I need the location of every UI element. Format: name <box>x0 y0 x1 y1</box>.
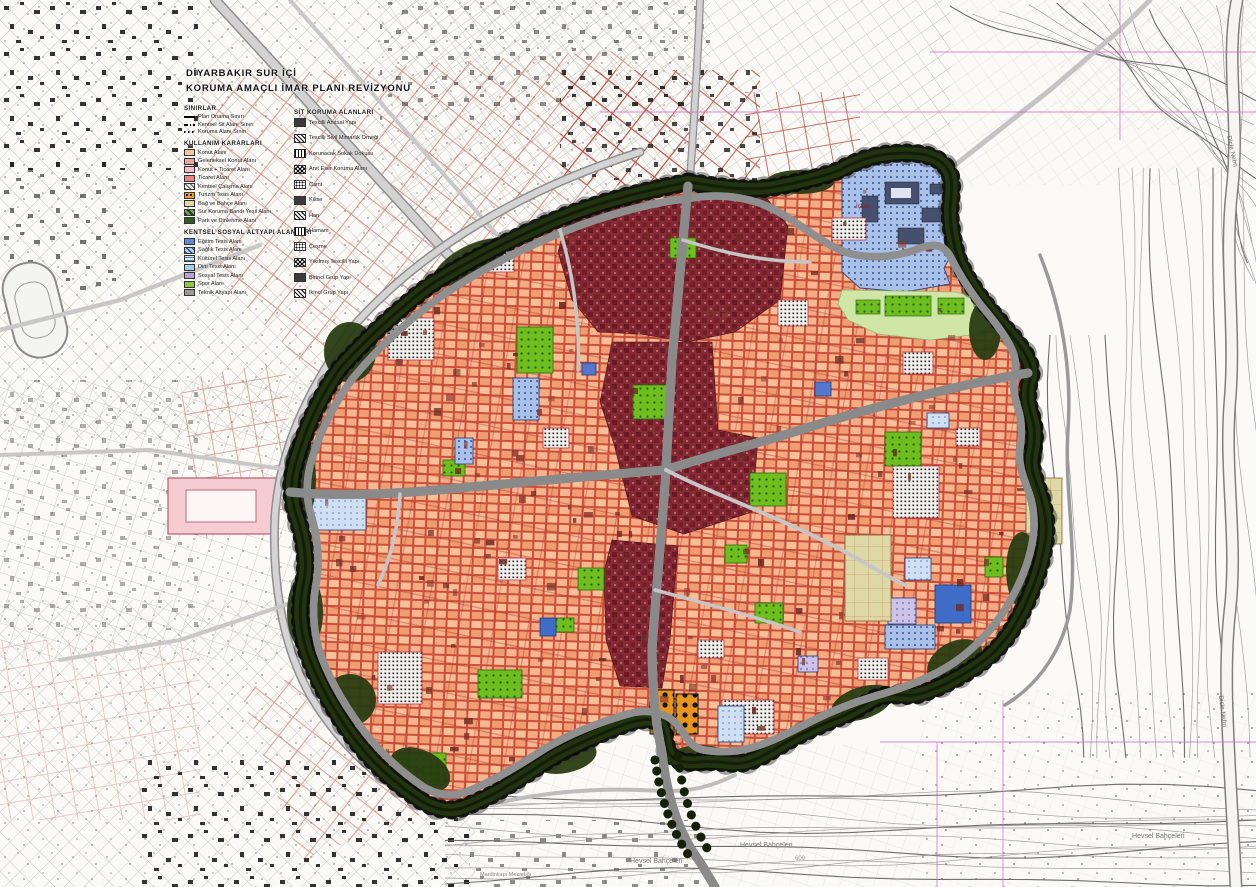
legend-label: Koruma Alanı Sınırı <box>198 129 247 135</box>
legend-swatch <box>184 264 195 271</box>
legend-row: Turizm Tesis Alanı <box>184 192 292 199</box>
legend-swatch <box>184 289 195 296</box>
legend-swatch <box>184 183 195 190</box>
legend-row: Birinci Grup Yapı <box>294 273 414 282</box>
legend-row: Ticaret Alanı <box>184 175 292 182</box>
legend-label: Konut Alanı <box>198 150 227 156</box>
plan-title: DİYARBAKIR SUR İÇİ KORUMA AMAÇLI İMAR PL… <box>186 66 411 96</box>
legend-row: Sur Koruma Bandı Yeşil Alanı <box>184 209 292 216</box>
legend-swatch <box>184 175 195 182</box>
legend-row: Yıkılmış Tescilli Yapı <box>294 258 414 267</box>
legend-row: Plan Onama Sınırı <box>184 114 292 120</box>
legend-row: Han <box>294 211 414 220</box>
legend-row: Spor Alanı <box>184 281 292 288</box>
legend-label: İkinci Grup Yapı <box>309 290 348 296</box>
map-label: 600 <box>795 856 805 862</box>
legend-label: Plan Onama Sınırı <box>198 114 244 120</box>
legend-label: Anıt Eser Koruma Alanı <box>309 166 367 172</box>
legend-label: Kültürel Tesis Alanı <box>198 256 245 262</box>
legend-label: Sağlık Tesis Alanı <box>198 247 242 253</box>
legend-swatch <box>184 217 195 224</box>
legend-label: Cami <box>309 182 322 188</box>
legend-row: Cami <box>294 180 414 189</box>
legend-row: Bağ ve Bahçe Alanı <box>184 200 292 207</box>
legend-swatch <box>184 281 195 288</box>
legend-label: Tescilli Anıtsal Yapı <box>309 120 356 126</box>
plan-sheet: DİYARBAKIR SUR İÇİ KORUMA AMAÇLI İMAR PL… <box>0 0 1256 887</box>
legend-label: Park ve Dinlenme Alanı <box>198 218 256 224</box>
legend-label: Han <box>309 213 319 219</box>
map-label: Mardinkapı Mezarlığı <box>480 872 531 878</box>
legend-section-header: SİT KORUMA ALANLARI <box>294 109 414 116</box>
legend-row: Konut Alanı <box>184 149 292 156</box>
legend-swatch <box>184 238 195 245</box>
legend-swatch <box>294 180 306 189</box>
legend-label: Birinci Grup Yapı <box>309 275 351 281</box>
legend-label: Bağ ve Bahçe Alanı <box>198 201 247 207</box>
legend-swatch <box>294 118 306 127</box>
legend-swatch <box>294 211 306 220</box>
legend-label: Spor Alanı <box>198 281 224 287</box>
legend-section-header: SINIRLAR <box>184 105 292 112</box>
legend-row: Tescilli Sivil Mimarlık Örneği <box>294 134 414 143</box>
legend-swatch <box>294 258 306 267</box>
legend-label: Tescilli Sivil Mimarlık Örneği <box>309 135 378 141</box>
legend-label: Kentsel Sit Alanı Sınırı <box>198 122 254 128</box>
legend-label: Çeşme <box>309 244 327 250</box>
legend-row: Eğitim Tesis Alanı <box>184 238 292 245</box>
legend-label: Sur Koruma Bandı Yeşil Alanı <box>198 209 271 215</box>
legend-row: Park ve Dinlenme Alanı <box>184 217 292 224</box>
legend-swatch <box>184 131 195 133</box>
legend-row: Anıt Eser Koruma Alanı <box>294 165 414 174</box>
legend-label: Konut + Ticaret Alanı <box>198 167 250 173</box>
legend-swatch <box>294 165 306 174</box>
legend-label: Geleneksel Konut Alanı <box>198 158 256 164</box>
legend-row: Tescilli Anıtsal Yapı <box>294 118 414 127</box>
pink-compound <box>168 478 276 534</box>
legend-label: Hamam <box>309 228 329 234</box>
legend-swatch <box>294 273 306 282</box>
legend-column-2: SİT KORUMA ALANLARITescilli Anıtsal Yapı… <box>294 104 414 304</box>
legend-label: Yıkılmış Tescilli Yapı <box>309 259 359 265</box>
legend-row: Geleneksel Konut Alanı <box>184 158 292 165</box>
legend-section-header: KENTSEL SOSYAL ALTYAPI ALANLARI <box>184 229 292 236</box>
legend-row: Korunacak Sokak Dokusu <box>294 149 414 158</box>
legend-row: Sağlık Tesis Alanı <box>184 247 292 254</box>
plan-title-line1: DİYARBAKIR SUR İÇİ <box>186 66 411 81</box>
legend-label: Teknik Altyapı Alanı <box>198 290 246 296</box>
legend-swatch <box>184 247 195 254</box>
legend-swatch <box>294 149 306 158</box>
legend-row: Hamam <box>294 227 414 236</box>
legend-label: Korunacak Sokak Dokusu <box>309 151 373 157</box>
legend-label: Dini Tesis Alanı <box>198 264 236 270</box>
legend-label: Kentsel Çalışma Alanı <box>198 184 253 190</box>
legend-swatch <box>294 134 306 143</box>
legend-swatch <box>294 289 306 298</box>
legend-row: Kültürel Tesis Alanı <box>184 255 292 262</box>
legend-label: Sosyal Tesis Alanı <box>198 273 243 279</box>
legend-row: İkinci Grup Yapı <box>294 289 414 298</box>
legend-swatch <box>184 192 195 199</box>
legend-swatch <box>184 209 195 216</box>
legend-column-1: SINIRLARPlan Onama SınırıKentsel Sit Ala… <box>184 100 292 298</box>
legend-label: Eğitim Tesis Alanı <box>198 239 242 245</box>
legend-swatch <box>184 166 195 173</box>
map-label: Hevsel Bahçeleri <box>630 858 683 865</box>
legend-row: Kentsel Çalışma Alanı <box>184 183 292 190</box>
legend-swatch <box>184 272 195 279</box>
legend-row: Kentsel Sit Alanı Sınırı <box>184 122 292 128</box>
legend-swatch <box>294 242 306 251</box>
legend-swatch <box>184 255 195 262</box>
legend-swatch <box>184 116 195 118</box>
legend-row: Sosyal Tesis Alanı <box>184 272 292 279</box>
legend-label: Kilise <box>309 197 322 203</box>
legend-section-header: KULLANIM KARARLARI <box>184 140 292 147</box>
plan-title-line2: KORUMA AMAÇLI İMAR PLANI REVİZYONU <box>186 81 411 96</box>
legend-row: Teknik Altyapı Alanı <box>184 289 292 296</box>
legend-row: Çeşme <box>294 242 414 251</box>
legend-swatch <box>184 158 195 165</box>
map-label: İçkale <box>856 204 872 210</box>
legend-label: Turizm Tesis Alanı <box>198 192 243 198</box>
legend-swatch <box>294 196 306 205</box>
legend-label: Ticaret Alanı <box>198 175 229 181</box>
legend-row: Koruma Alanı Sınırı <box>184 129 292 135</box>
map-label: Hevsel Bahçeleri <box>740 842 793 849</box>
legend-row: Konut + Ticaret Alanı <box>184 166 292 173</box>
legend-swatch <box>184 200 195 207</box>
map-label: Hevsel Bahçeleri <box>1132 833 1185 840</box>
legend-row: Dini Tesis Alanı <box>184 264 292 271</box>
legend-swatch <box>184 149 195 156</box>
legend-swatch <box>184 124 195 126</box>
legend-swatch <box>294 227 306 236</box>
legend-row: Kilise <box>294 196 414 205</box>
